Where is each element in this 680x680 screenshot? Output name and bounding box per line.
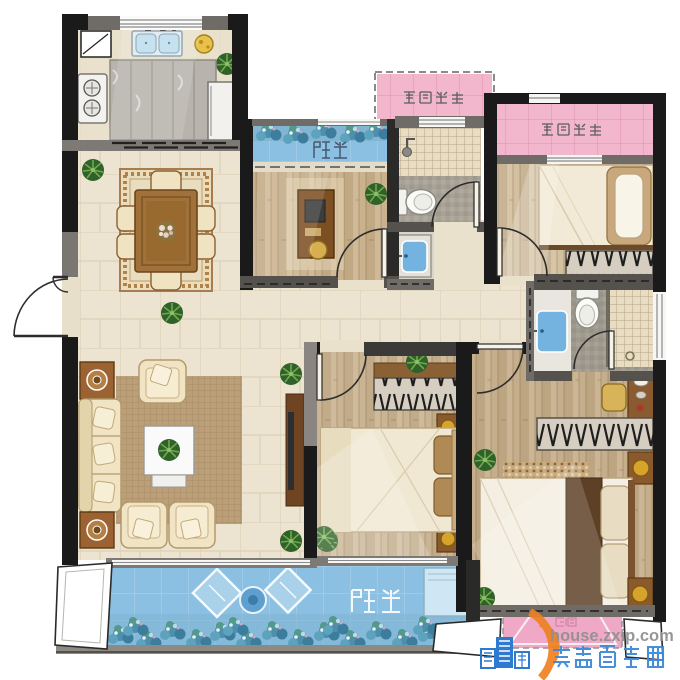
svg-text:house.zxip.com: house.zxip.com xyxy=(550,627,674,645)
